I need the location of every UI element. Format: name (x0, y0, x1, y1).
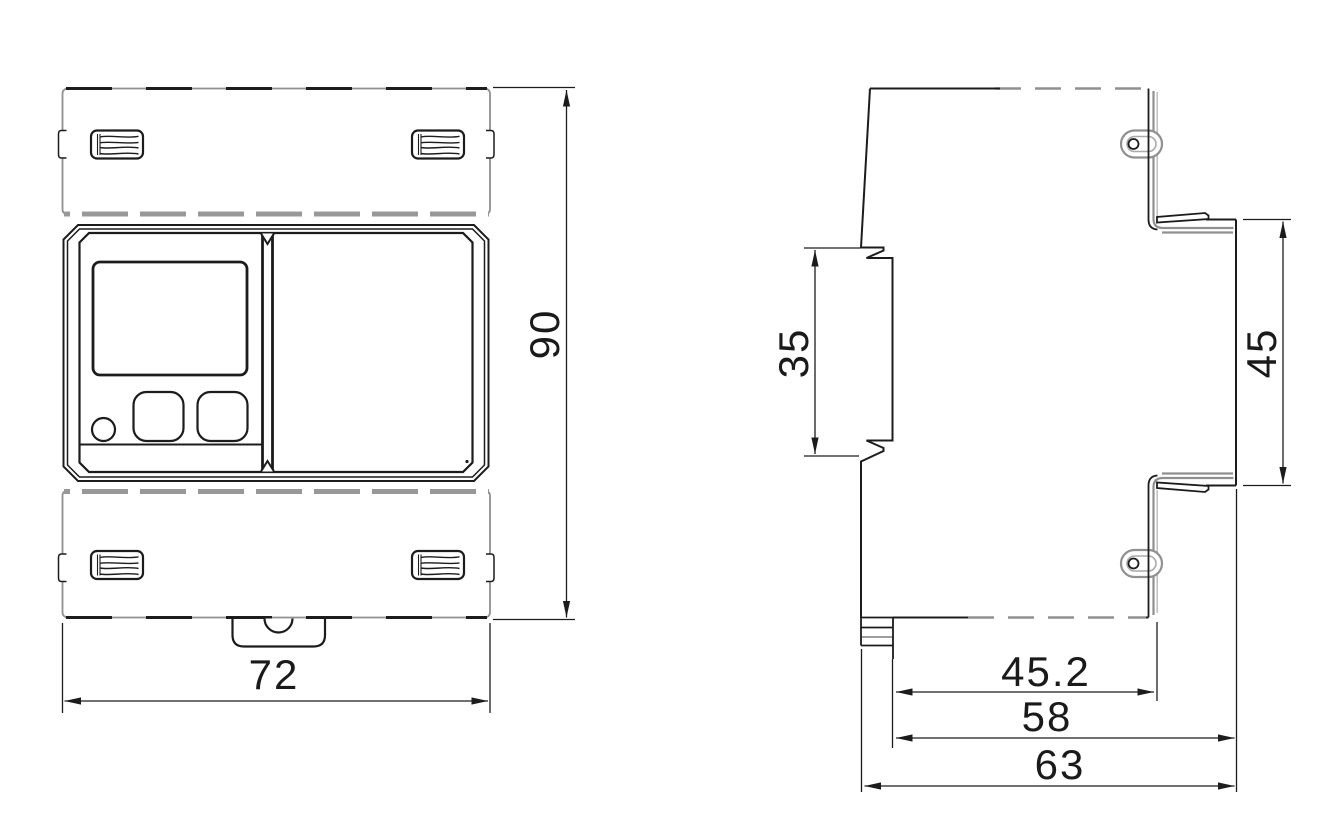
cover-side-notch (486, 554, 494, 582)
dim-side-rail-slot-label: 35 (770, 328, 817, 379)
front-top-terminal-cover (59, 89, 495, 215)
side-cover-lines (861, 89, 1234, 638)
dim-front-height-label: 90 (521, 309, 568, 360)
button-right[interactable] (198, 392, 248, 441)
terminal-screw (91, 551, 143, 579)
dim-front-height: 90 (493, 88, 575, 620)
eyelet-hole-top (1129, 139, 1139, 149)
cover-side-notch (59, 131, 67, 159)
terminal-screw (91, 131, 143, 159)
dim-side-rail-slot: 35 (770, 248, 860, 456)
dim-side-body-depth-label: 58 (1022, 693, 1073, 740)
dim-side-front-height-label: 45 (1238, 328, 1285, 379)
lcd-display (93, 262, 247, 375)
rail-flange-bottom (1157, 483, 1209, 493)
eyelet-hole-bottom (1129, 559, 1139, 569)
terminal-screw (412, 131, 464, 159)
din-clip (233, 619, 326, 647)
sealing-eyelet-top (1121, 131, 1162, 158)
side-view: 35 45 45.2 58 63 (770, 89, 1291, 793)
front-view: 90 72 (59, 88, 576, 714)
side-body-outline (861, 89, 1236, 660)
front-bottom-terminal-cover (59, 491, 495, 618)
front-face-plate (64, 225, 489, 481)
cover-side-notch (59, 554, 67, 582)
cover-side-notch (486, 131, 494, 159)
mold-mark (465, 460, 468, 463)
led-indicator (92, 418, 115, 441)
din-rail-recess (861, 89, 893, 618)
dim-side-total-depth-label: 63 (1035, 741, 1086, 788)
dim-side-front-height: 45 (1238, 220, 1291, 486)
button-left[interactable] (134, 392, 184, 441)
sealing-eyelet-bottom (1121, 550, 1162, 577)
terminal-screw (412, 551, 464, 579)
dim-side-rail-to-back-label: 45.2 (1001, 648, 1091, 695)
technical-drawing: 90 72 (0, 0, 1344, 839)
dim-front-width-label: 72 (249, 651, 300, 698)
rail-flange-top (1157, 213, 1209, 223)
